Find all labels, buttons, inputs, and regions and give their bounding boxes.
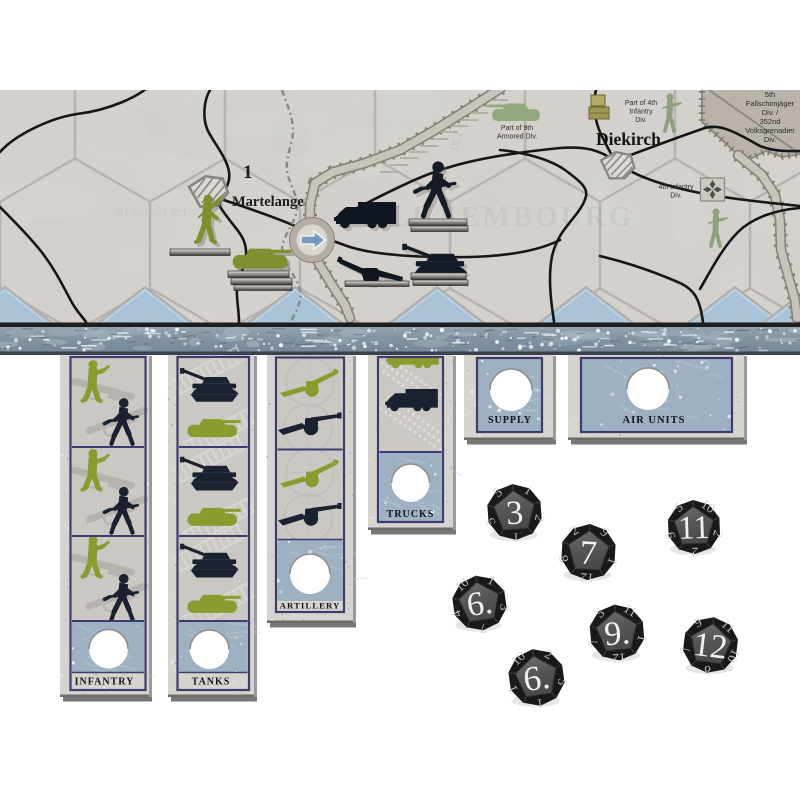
svg-text:12: 12 [691, 626, 729, 667]
svg-text:Part of 4th: Part of 4th [625, 100, 657, 107]
svg-text:12: 12 [580, 570, 594, 586]
svg-text:TRUCKS: TRUCKS [387, 509, 435, 520]
svg-text:Martelange: Martelange [232, 194, 304, 210]
svg-text:12: 12 [612, 650, 627, 666]
svg-text:ARTILLERY: ARTILLERY [280, 601, 341, 611]
svg-text:9.: 9. [603, 614, 632, 653]
svg-text:Div. /: Div. / [762, 108, 779, 117]
svg-text:2: 2 [691, 545, 698, 560]
svg-text:6.: 6. [521, 657, 552, 699]
svg-text:Armored Div.: Armored Div. [497, 134, 537, 141]
svg-text:AIR UNITS: AIR UNITS [623, 415, 686, 426]
svg-text:Diekirch: Diekirch [596, 129, 661, 149]
svg-text:SUPPLY: SUPPLY [488, 415, 532, 426]
svg-text:Div.: Div. [764, 135, 776, 144]
svg-text:6.: 6. [464, 584, 494, 624]
svg-text:5th: 5th [765, 90, 775, 99]
svg-text:Fallschimjäger: Fallschimjäger [746, 99, 795, 108]
svg-text:155 170 175 180: 155 170 175 180 [112, 206, 187, 218]
svg-text:Infantry: Infantry [629, 109, 653, 116]
svg-text:1: 1 [243, 162, 253, 183]
svg-text:TANKS: TANKS [192, 677, 231, 688]
svg-text:1: 1 [512, 530, 520, 545]
svg-text:INFANTRY: INFANTRY [75, 677, 135, 688]
svg-text:4th Infantry: 4th Infantry [658, 184, 694, 191]
svg-text:352nd: 352nd [760, 117, 781, 126]
svg-text:Div.: Div. [635, 117, 647, 124]
svg-text:3: 3 [505, 494, 525, 532]
svg-text:Volksgrenadier: Volksgrenadier [745, 126, 795, 135]
svg-text:7: 7 [579, 534, 598, 572]
svg-text:Div.: Div. [670, 193, 682, 200]
svg-text:Part of 9th: Part of 9th [501, 125, 533, 132]
svg-text:11: 11 [678, 510, 711, 547]
